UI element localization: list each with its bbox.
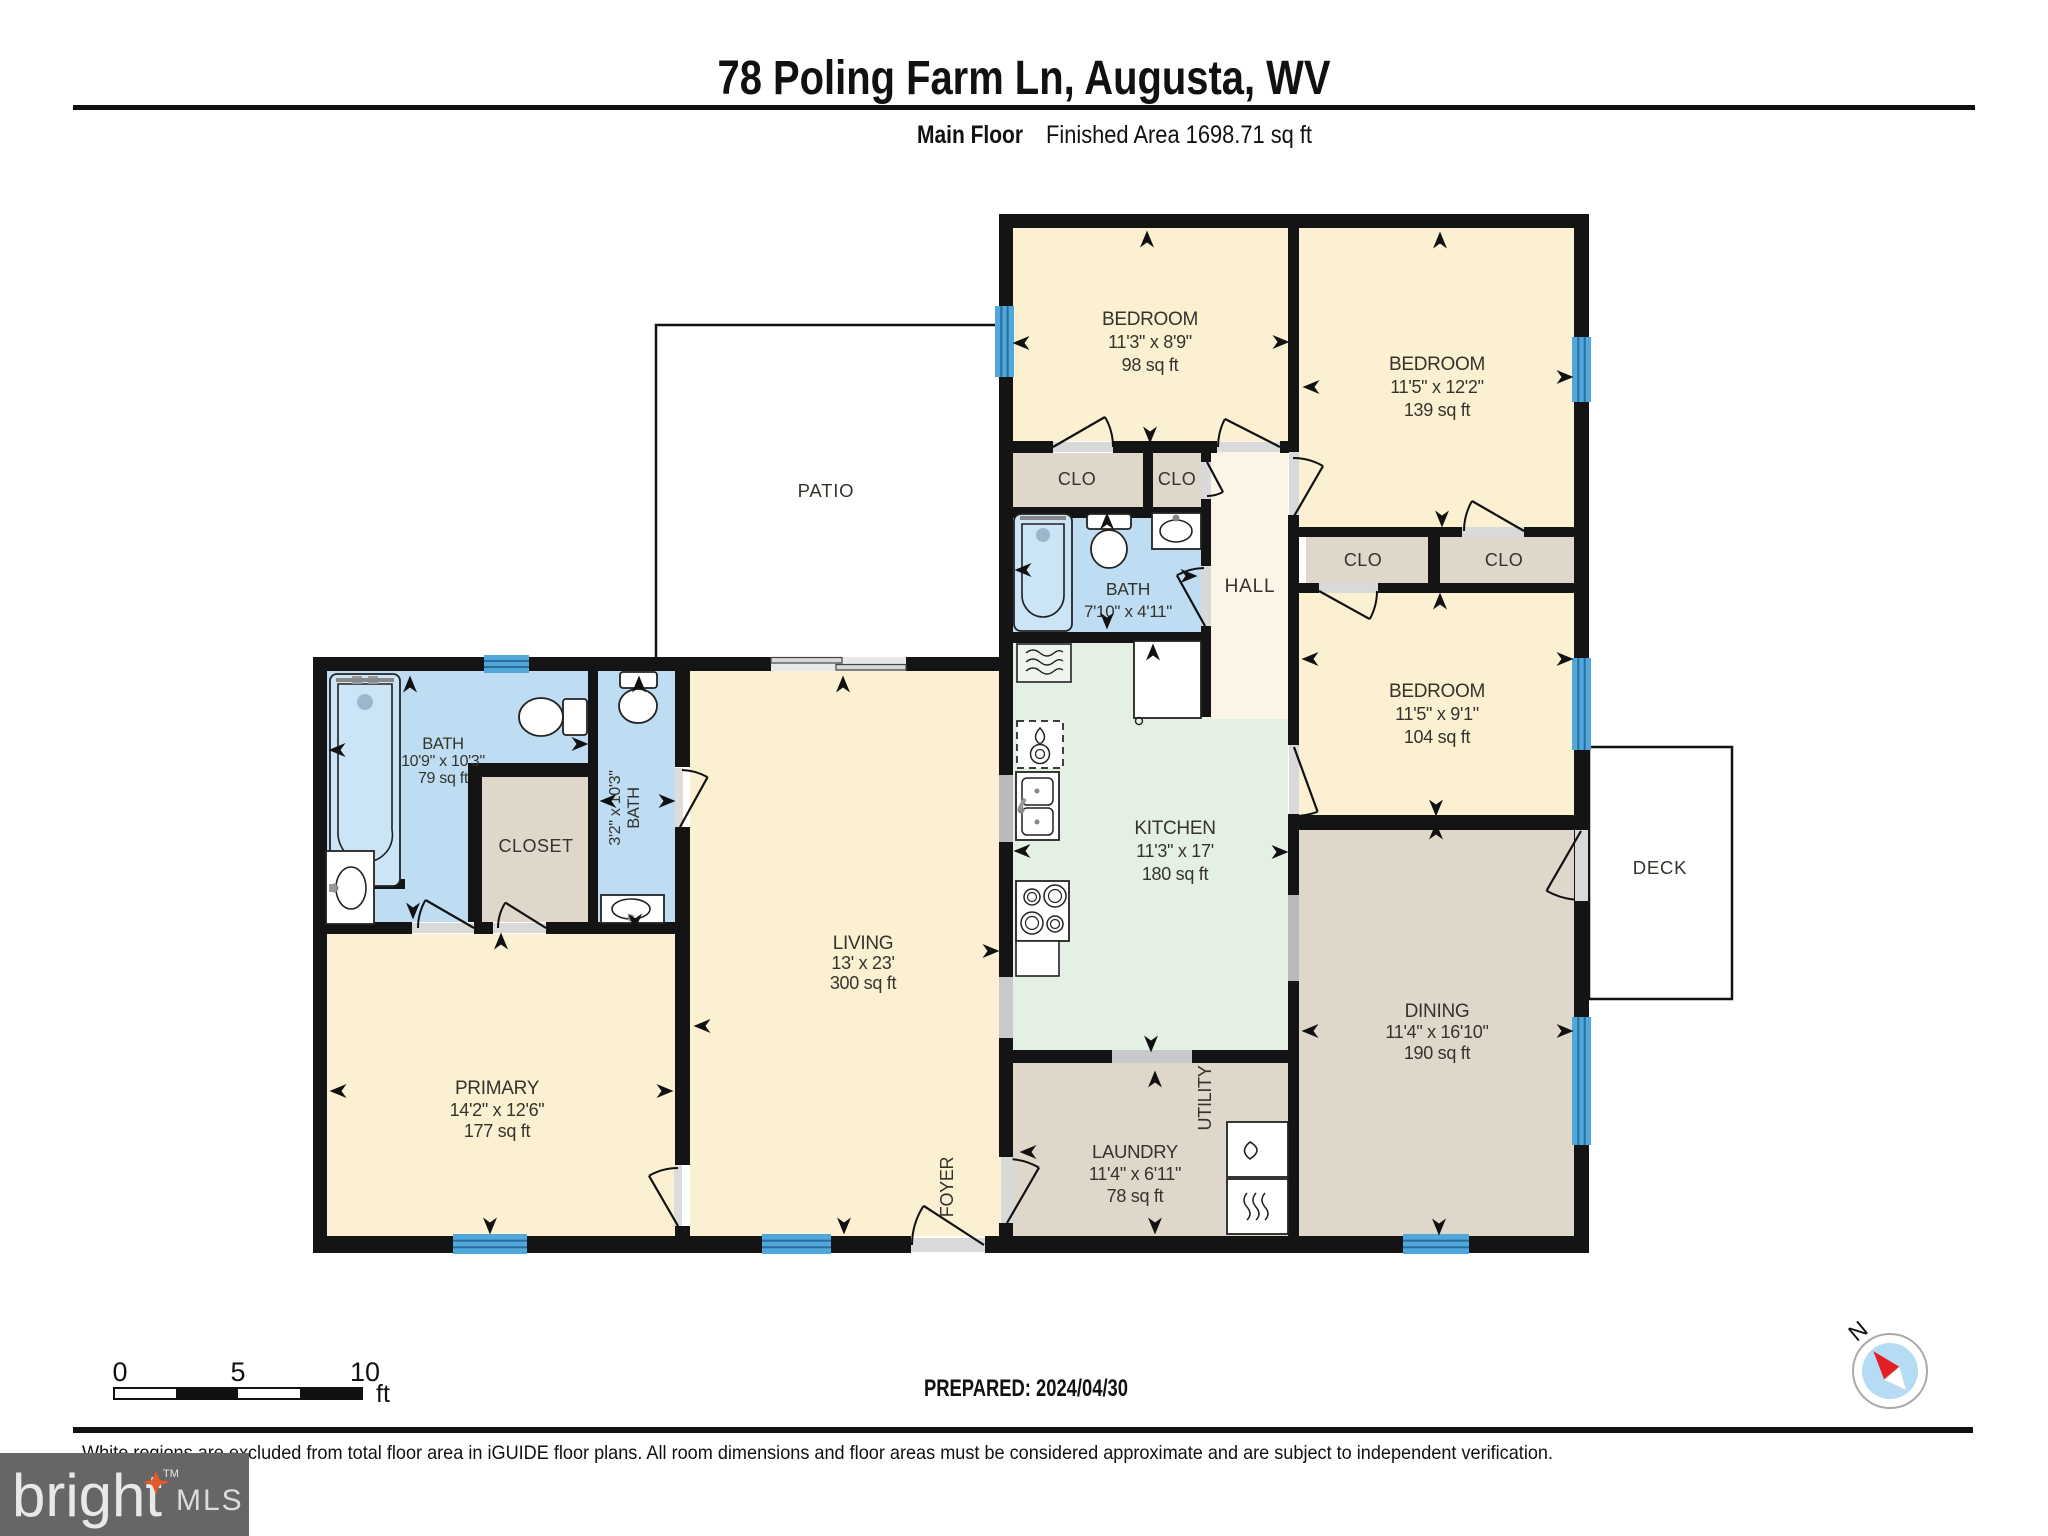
svg-text:7'10" x 4'11": 7'10" x 4'11"	[1084, 602, 1172, 621]
svg-text:177 sq ft: 177 sq ft	[464, 1121, 531, 1141]
svg-text:11'5" x 12'2": 11'5" x 12'2"	[1390, 377, 1483, 397]
svg-text:HALL: HALL	[1225, 576, 1276, 597]
svg-text:PREPARED: 2024/04/30: PREPARED: 2024/04/30	[924, 1375, 1128, 1402]
svg-text:BEDROOM: BEDROOM	[1389, 681, 1485, 702]
svg-text:CLO: CLO	[1058, 469, 1096, 489]
svg-text:CLO: CLO	[1485, 550, 1523, 570]
svg-text:11'3" x 8'9": 11'3" x 8'9"	[1108, 332, 1192, 352]
svg-text:PATIO: PATIO	[798, 480, 855, 501]
svg-text:BEDROOM: BEDROOM	[1102, 309, 1198, 330]
svg-text:104 sq ft: 104 sq ft	[1404, 727, 1471, 747]
svg-text:White regions are excluded fro: White regions are excluded from total fl…	[82, 1442, 1553, 1464]
svg-text:LIVING: LIVING	[833, 933, 894, 954]
svg-text:79 sq ft: 79 sq ft	[418, 770, 469, 787]
svg-text:TM: TM	[163, 1468, 179, 1480]
svg-text:CLOSET: CLOSET	[498, 836, 573, 856]
svg-text:LAUNDRY: LAUNDRY	[1092, 1141, 1178, 1162]
svg-text:5: 5	[230, 1357, 245, 1387]
svg-text:MLS: MLS	[176, 1484, 244, 1517]
svg-text:180 sq ft: 180 sq ft	[1142, 864, 1209, 884]
svg-text:BATH: BATH	[1106, 579, 1150, 599]
svg-text:190 sq ft: 190 sq ft	[1404, 1043, 1471, 1063]
svg-text:bright: bright	[12, 1462, 162, 1529]
svg-text:11'4" x 16'10": 11'4" x 16'10"	[1385, 1022, 1488, 1042]
svg-text:3'2" x 10'3": 3'2" x 10'3"	[607, 770, 624, 845]
svg-text:DECK: DECK	[1633, 857, 1688, 878]
svg-text:PRIMARY: PRIMARY	[455, 1078, 540, 1099]
svg-text:Main Floor: Main Floor	[917, 121, 1023, 149]
svg-text:BEDROOM: BEDROOM	[1389, 354, 1485, 375]
svg-text:Finished Area 1698.71 sq ft: Finished Area 1698.71 sq ft	[1046, 121, 1312, 149]
svg-text:14'2" x 12'6": 14'2" x 12'6"	[450, 1100, 545, 1120]
svg-text:BATH: BATH	[422, 735, 464, 753]
svg-text:ft: ft	[376, 1380, 390, 1408]
svg-text:11'4" x 6'11": 11'4" x 6'11"	[1089, 1164, 1181, 1184]
svg-text:98 sq ft: 98 sq ft	[1122, 355, 1179, 375]
svg-text:10'9" x 10'3": 10'9" x 10'3"	[401, 753, 485, 770]
svg-text:139 sq ft: 139 sq ft	[1404, 400, 1471, 420]
svg-text:13' x 23': 13' x 23'	[831, 953, 894, 973]
svg-text:CLO: CLO	[1344, 550, 1382, 570]
svg-text:0: 0	[112, 1357, 127, 1387]
svg-text:11'5" x 9'1": 11'5" x 9'1"	[1395, 704, 1479, 724]
svg-text:78 Poling Farm Ln, Augusta, WV: 78 Poling Farm Ln, Augusta, WV	[718, 52, 1331, 105]
svg-text:FOYER: FOYER	[937, 1156, 957, 1217]
svg-text:11'3" x 17': 11'3" x 17'	[1136, 841, 1214, 861]
svg-text:DINING: DINING	[1405, 1001, 1470, 1022]
svg-text:CLO: CLO	[1158, 469, 1196, 489]
svg-text:KITCHEN: KITCHEN	[1134, 818, 1215, 839]
svg-text:78 sq ft: 78 sq ft	[1107, 1186, 1164, 1206]
svg-text:300 sq ft: 300 sq ft	[830, 973, 897, 993]
svg-text:UTILITY: UTILITY	[1195, 1065, 1215, 1130]
svg-text:BATH: BATH	[625, 787, 643, 829]
